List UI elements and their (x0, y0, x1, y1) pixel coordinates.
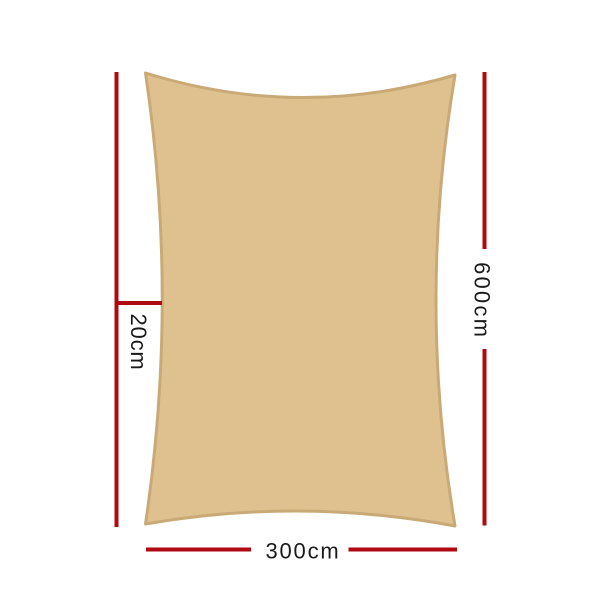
svg-text:20cm: 20cm (126, 314, 151, 371)
svg-text:600cm: 600cm (469, 262, 494, 339)
svg-text:300cm: 300cm (265, 539, 340, 564)
